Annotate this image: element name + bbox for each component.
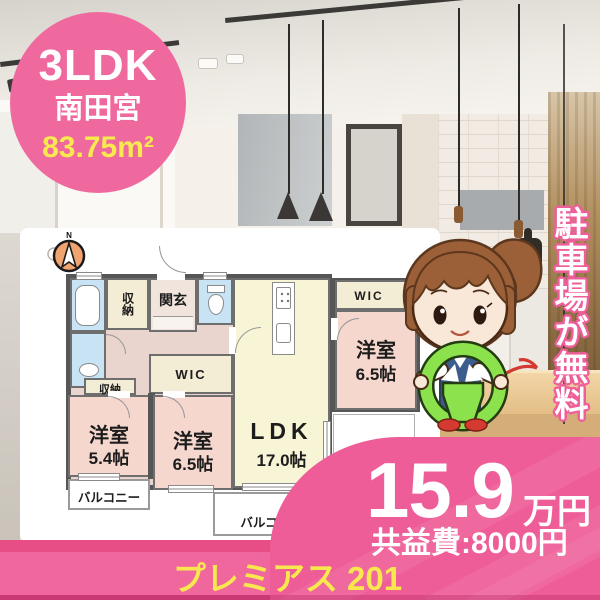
cord-wood-end [454,206,463,223]
pendant-cord [518,4,520,220]
pendant-cord [288,24,290,194]
vertical-banner: 駐車場が無料 [541,206,595,446]
entrance: 玄関 [149,278,197,332]
window [76,272,102,280]
compass-label: N [66,231,72,240]
bathtub-icon [75,285,100,326]
bedroom-bl-size: 5.4帖 [70,444,148,469]
entrance-door-gap [157,272,185,280]
eye-left [434,306,447,325]
stove-icon [276,287,291,309]
entrance-step [153,316,193,329]
shoe-right [465,419,487,431]
kitchen-gray-panel [460,190,544,230]
left-wall-strip [0,233,20,540]
entrance-door-arc [159,246,186,273]
bathroom [70,278,106,332]
wic-hall: WIC [149,354,233,394]
bedroom-bc-size: 6.5帖 [155,450,231,475]
ldk-room: LDK 17.0帖 [233,278,330,488]
hand-right [494,375,508,389]
kitchen-island [272,282,295,355]
ceiling-light [198,58,218,69]
pendant-cord [458,8,460,206]
hand-left [414,375,428,389]
shoe-left [438,419,460,431]
interior-door [346,124,402,226]
compass: N [44,230,94,276]
balcony-left: バルコニー [68,479,150,510]
ceiling-light [226,54,244,64]
wic-hall-label: WIC [151,367,231,382]
toilet-bowl-icon [208,294,224,315]
toilet-room [197,278,233,325]
wheel-hub [443,383,483,422]
entrance-label: 玄関 [159,293,187,318]
window [168,485,214,493]
closet-top-label: 収納 [122,292,134,316]
ldk-name: LDK [235,418,328,445]
badge-location: 南田宮 [54,95,141,124]
kitchen-sink-icon [276,323,291,343]
badge-area: 83.75m² [42,133,154,163]
eye-highlight [480,309,485,314]
property-badge: 3LDK 南田宮 83.75m² [10,12,186,193]
window [203,272,227,280]
closet-top: 収納 [106,278,149,330]
badge-layout-type: 3LDK [39,44,158,88]
window [78,473,120,481]
sink-icon [79,363,99,377]
listing-image: N 収納 玄関 WIC [0,0,600,600]
eye-highlight [440,309,445,314]
balcony-left-label: バルコニー [70,487,148,506]
mascot-character [383,228,548,434]
eye-right [474,306,487,325]
property-name: プレミアス 201 [90,552,485,600]
pendant-cord [322,20,324,194]
toilet-icon [207,285,225,293]
